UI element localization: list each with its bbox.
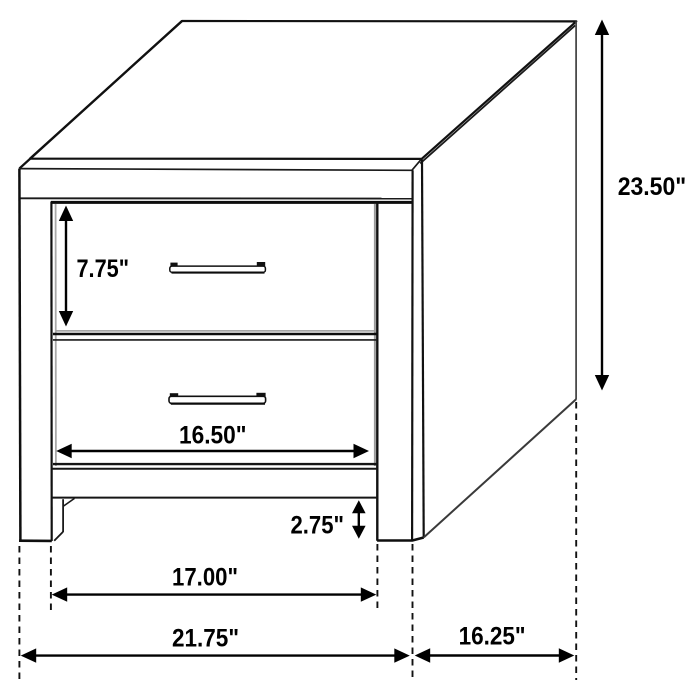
svg-text:16.50": 16.50" bbox=[179, 422, 247, 450]
svg-text:16.25": 16.25" bbox=[459, 622, 526, 650]
svg-text:23.50": 23.50" bbox=[618, 173, 687, 201]
svg-text:17.00": 17.00" bbox=[172, 564, 238, 592]
svg-text:7.75": 7.75" bbox=[77, 255, 130, 283]
svg-text:2.75": 2.75" bbox=[291, 511, 345, 539]
svg-text:21.75": 21.75" bbox=[172, 625, 239, 653]
